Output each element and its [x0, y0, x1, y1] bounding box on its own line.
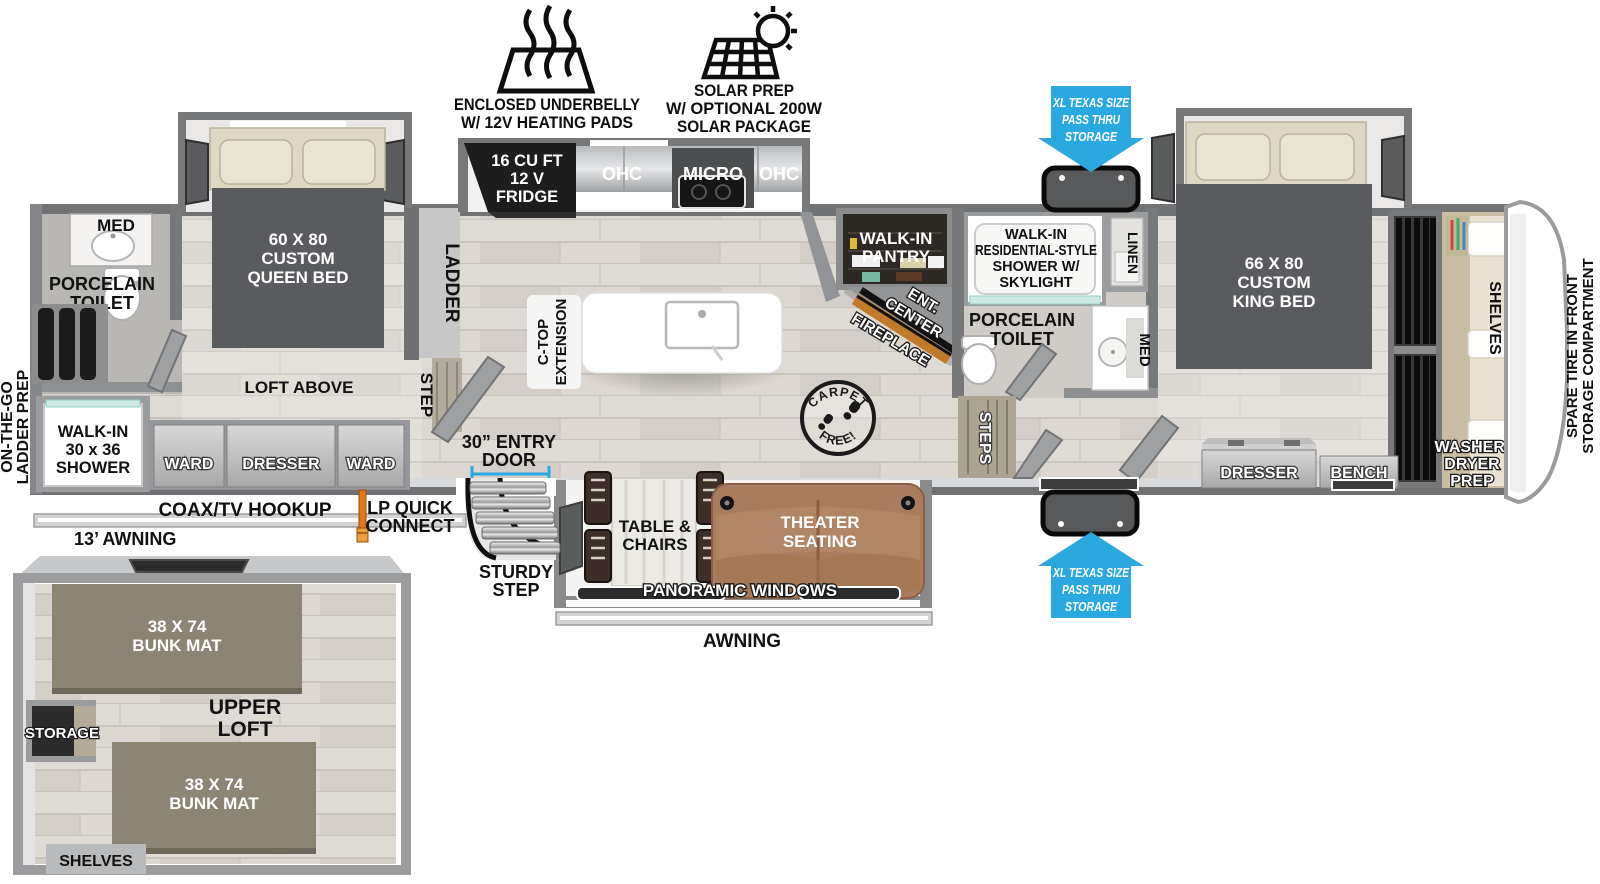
svg-text:60 X 80: 60 X 80 — [269, 230, 328, 249]
svg-text:RESIDENTIAL-STYLE: RESIDENTIAL-STYLE — [975, 243, 1097, 259]
svg-text:COAX/TV HOOKUP: COAX/TV HOOKUP — [158, 500, 331, 521]
svg-text:STEP: STEP — [492, 580, 539, 600]
svg-text:PANORAMIC WINDOWS: PANORAMIC WINDOWS — [643, 581, 837, 600]
svg-text:W/ OPTIONAL 200W: W/ OPTIONAL 200W — [666, 99, 823, 118]
svg-text:SEATING: SEATING — [783, 532, 857, 551]
svg-text:THEATER: THEATER — [780, 513, 859, 532]
svg-text:LADDER: LADDER — [441, 243, 462, 322]
svg-text:CUSTOM: CUSTOM — [261, 249, 334, 268]
svg-text:MICRO: MICRO — [683, 164, 743, 184]
svg-text:OHC: OHC — [759, 164, 799, 184]
svg-text:SHOWER: SHOWER — [56, 459, 130, 477]
svg-text:LADDER PREP: LADDER PREP — [15, 369, 32, 484]
svg-text:WALK-IN: WALK-IN — [58, 423, 129, 441]
svg-text:UPPER: UPPER — [209, 696, 281, 719]
svg-text:ON-THE-GO: ON-THE-GO — [0, 381, 16, 473]
svg-text:KING BED: KING BED — [1232, 292, 1315, 311]
svg-text:PORCELAIN: PORCELAIN — [969, 310, 1075, 330]
svg-text:STORAGE: STORAGE — [25, 725, 99, 742]
svg-text:LOFT: LOFT — [218, 718, 273, 741]
svg-text:MED: MED — [97, 216, 135, 235]
svg-text:MED: MED — [1136, 333, 1153, 367]
svg-text:PASS THRU: PASS THRU — [1062, 112, 1120, 127]
svg-text:DOOR: DOOR — [482, 450, 536, 470]
svg-text:DRESSER: DRESSER — [242, 456, 320, 473]
svg-text:66 X 80: 66 X 80 — [1245, 254, 1304, 273]
svg-text:30” ENTRY: 30” ENTRY — [462, 432, 556, 452]
svg-text:WALK-IN: WALK-IN — [1005, 227, 1067, 243]
svg-text:STORAGE: STORAGE — [1065, 599, 1117, 614]
svg-text:C-TOP: C-TOP — [535, 319, 552, 365]
svg-text:WALK-IN: WALK-IN — [860, 229, 933, 248]
svg-text:AWNING: AWNING — [703, 631, 781, 652]
svg-text:FRIDGE: FRIDGE — [496, 188, 558, 206]
svg-text:SPARE TIRE IN FRONT: SPARE TIRE IN FRONT — [1564, 274, 1581, 438]
svg-text:STEP: STEP — [417, 373, 436, 417]
svg-text:CHAIRS: CHAIRS — [622, 535, 687, 554]
svg-text:30 x 36: 30 x 36 — [65, 441, 120, 459]
svg-text:STORAGE: STORAGE — [1065, 129, 1117, 144]
svg-text:XL TEXAS SIZE: XL TEXAS SIZE — [1052, 565, 1129, 580]
svg-text:LINEN: LINEN — [1125, 232, 1141, 274]
svg-text:EXTENSION: EXTENSION — [553, 299, 570, 386]
svg-text:WASHER/: WASHER/ — [1435, 439, 1510, 456]
svg-text:QUEEN BED: QUEEN BED — [247, 268, 348, 287]
svg-text:PREP: PREP — [1450, 473, 1494, 490]
svg-text:SOLAR PREP: SOLAR PREP — [694, 81, 794, 100]
svg-text:STURDY: STURDY — [479, 562, 553, 582]
svg-text:SKYLIGHT: SKYLIGHT — [999, 275, 1072, 291]
svg-text:SHELVES: SHELVES — [1486, 281, 1503, 355]
svg-text:DRYER: DRYER — [1444, 456, 1500, 473]
svg-text:BUNK MAT: BUNK MAT — [169, 794, 259, 813]
svg-text:WARD: WARD — [347, 456, 396, 473]
svg-text:LOFT ABOVE: LOFT ABOVE — [245, 378, 354, 397]
svg-text:38 X 74: 38 X 74 — [185, 775, 244, 794]
svg-text:BUNK MAT: BUNK MAT — [132, 636, 222, 655]
svg-text:PASS THRU: PASS THRU — [1062, 582, 1120, 597]
svg-text:CONNECT: CONNECT — [366, 516, 455, 536]
svg-text:LP QUICK: LP QUICK — [367, 498, 453, 518]
svg-text:ENCLOSED UNDERBELLY: ENCLOSED UNDERBELLY — [454, 95, 641, 114]
svg-text:WARD: WARD — [165, 456, 214, 473]
svg-text:OHC: OHC — [602, 164, 642, 184]
svg-text:SHOWER W/: SHOWER W/ — [993, 259, 1080, 275]
svg-text:SOLAR PACKAGE: SOLAR PACKAGE — [677, 117, 811, 136]
svg-text:DRESSER: DRESSER — [1220, 465, 1298, 482]
svg-text:PORCELAIN: PORCELAIN — [49, 274, 155, 294]
svg-text:SHELVES: SHELVES — [59, 853, 133, 870]
svg-text:W/ 12V HEATING PADS: W/ 12V HEATING PADS — [461, 113, 633, 132]
svg-text:38 X 74: 38 X 74 — [148, 617, 207, 636]
svg-text:STORAGE COMPARTMENT: STORAGE COMPARTMENT — [1580, 258, 1597, 453]
svg-text:TABLE &: TABLE & — [619, 517, 691, 536]
svg-text:16 CU FT: 16 CU FT — [491, 152, 563, 170]
svg-text:PANTRY: PANTRY — [862, 247, 931, 266]
svg-text:13’ AWNING: 13’ AWNING — [74, 529, 176, 549]
svg-text:STEPS: STEPS — [976, 412, 993, 465]
svg-text:XL TEXAS SIZE: XL TEXAS SIZE — [1052, 95, 1129, 110]
svg-text:12 V: 12 V — [510, 170, 544, 188]
svg-text:CUSTOM: CUSTOM — [1237, 273, 1310, 292]
